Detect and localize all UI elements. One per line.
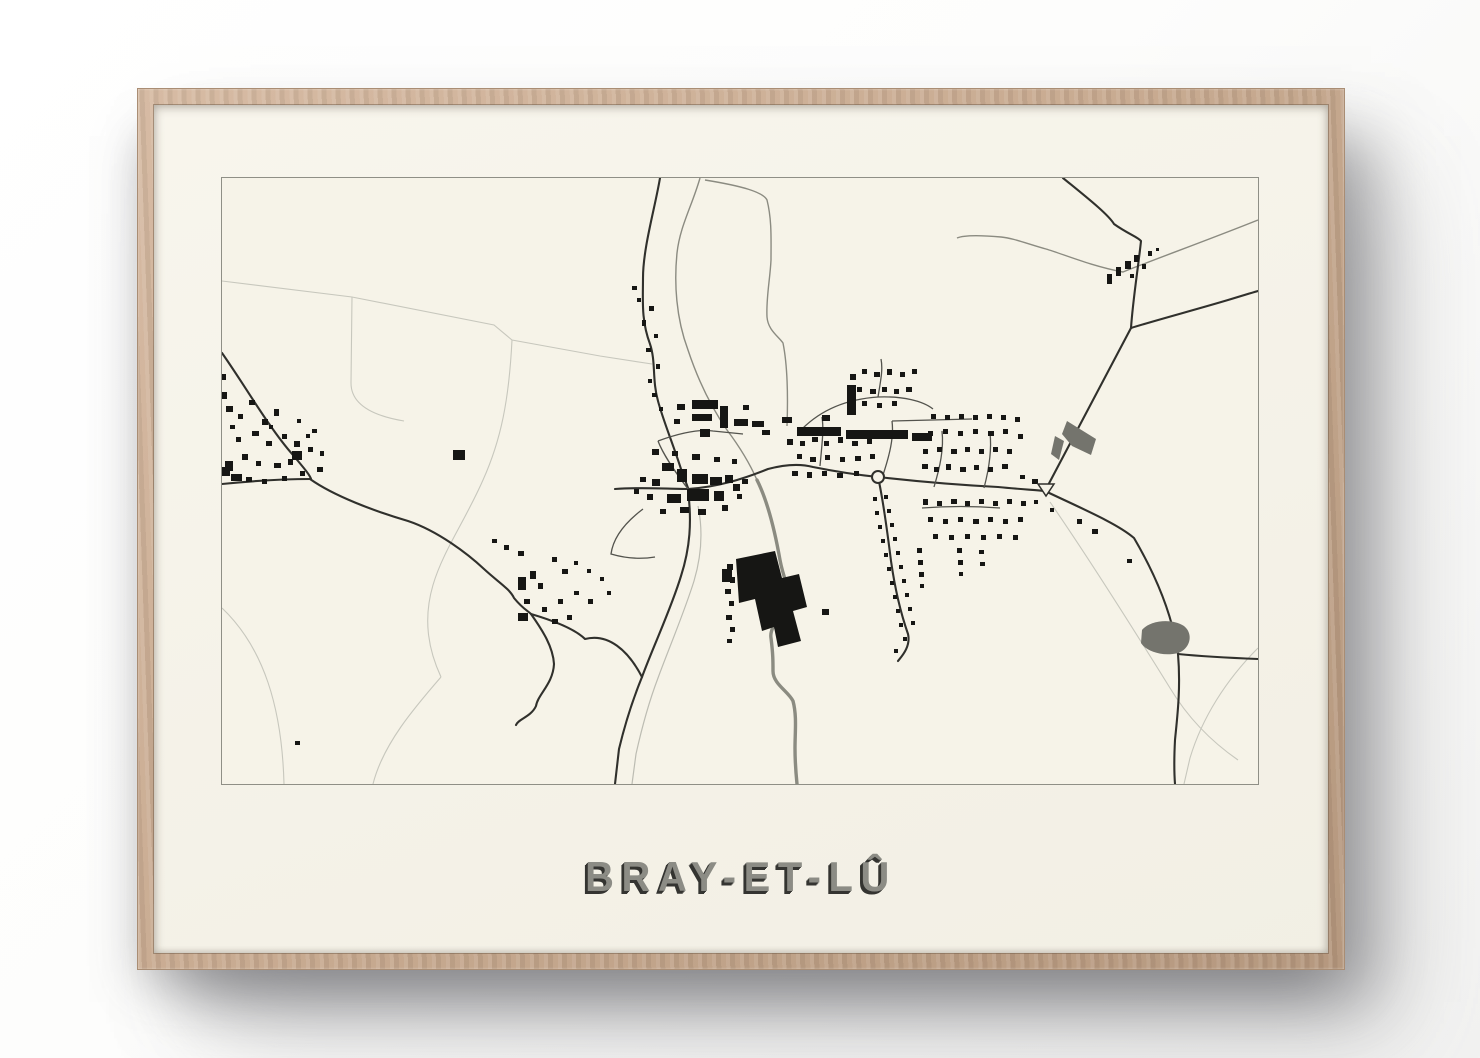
- picture-frame: BRAY-ET-LÛ: [137, 88, 1345, 970]
- roads-layer: [222, 178, 1258, 784]
- buildings-layer: [222, 248, 1159, 745]
- poster-title: BRAY-ET-LÛ: [183, 853, 1298, 901]
- railway: [632, 506, 701, 784]
- streets-layer: [611, 359, 1000, 558]
- map-artwork: [222, 178, 1258, 784]
- poster-paper: BRAY-ET-LÛ: [154, 105, 1328, 953]
- roundabout: [872, 471, 884, 483]
- map-panel: [221, 177, 1259, 785]
- wall: BRAY-ET-LÛ: [0, 0, 1480, 1058]
- field-lines-layer: [222, 281, 1258, 784]
- ponds-layer: [1051, 421, 1190, 654]
